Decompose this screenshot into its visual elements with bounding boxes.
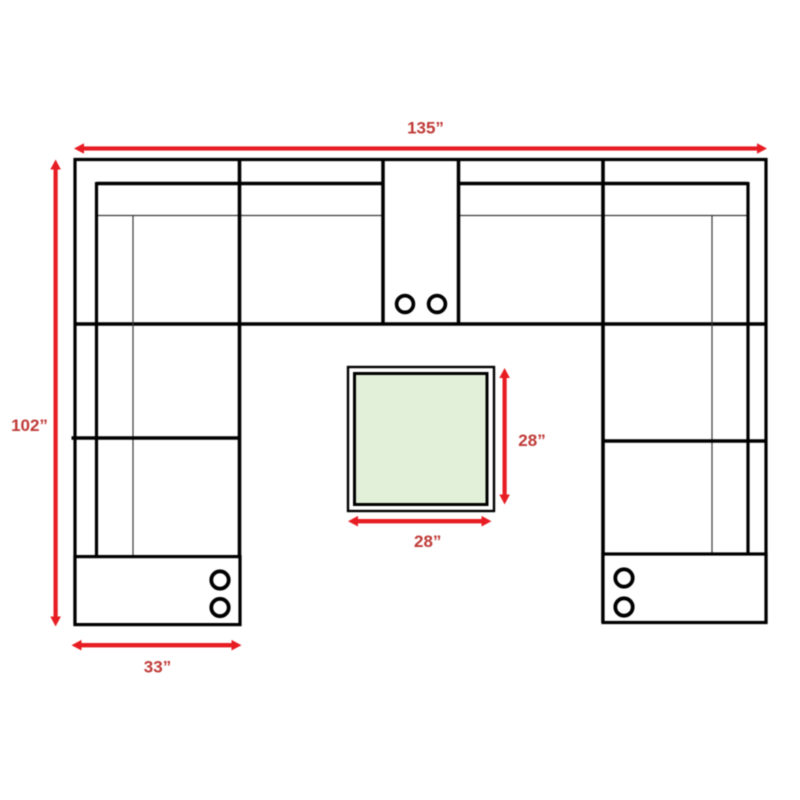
svg-text:102”: 102” [11,416,48,435]
svg-text:28”: 28” [414,532,441,551]
svg-text:33”: 33” [144,658,171,677]
svg-text:28”: 28” [518,431,545,450]
svg-text:135”: 135” [407,119,444,138]
